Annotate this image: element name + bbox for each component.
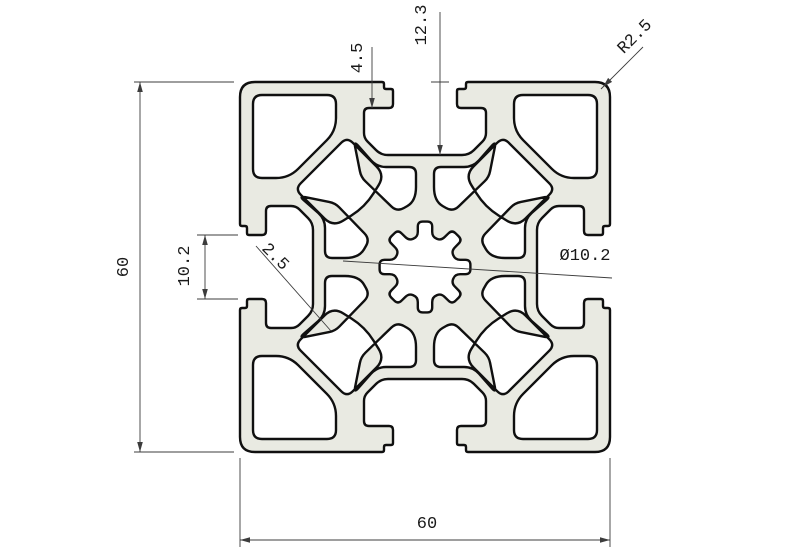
- dimension-arrowhead: [240, 537, 250, 543]
- dim-width-label: 60: [417, 515, 437, 534]
- dim-bore-diameter-label: Ø10.2: [559, 247, 610, 266]
- dimension-arrowhead: [202, 289, 208, 299]
- dim-lip-depth-label: 4.5: [349, 43, 368, 74]
- dimension-arrowhead: [137, 82, 143, 92]
- technical-drawing-canvas: 4.5 12.3 R2.5 60 10.2 2.5 Ø10.2 60: [0, 0, 804, 557]
- dim-rib-thickness-label: 2.5: [257, 240, 292, 275]
- dim-slot-width-label: 10.2: [176, 246, 195, 287]
- dim-slot-depth-label: 12.3: [413, 5, 432, 46]
- drawing-page: 4.5 12.3 R2.5 60 10.2 2.5 Ø10.2 60: [0, 0, 804, 557]
- dimension-arrowhead: [202, 235, 208, 245]
- dimension-arrowhead: [600, 537, 610, 543]
- dimension-arrowhead: [137, 442, 143, 452]
- dimension-arrowhead: [437, 145, 443, 155]
- dim-height-label: 60: [115, 257, 134, 277]
- profile-solid: [240, 82, 610, 452]
- dim-corner-radius-label: R2.5: [614, 16, 656, 58]
